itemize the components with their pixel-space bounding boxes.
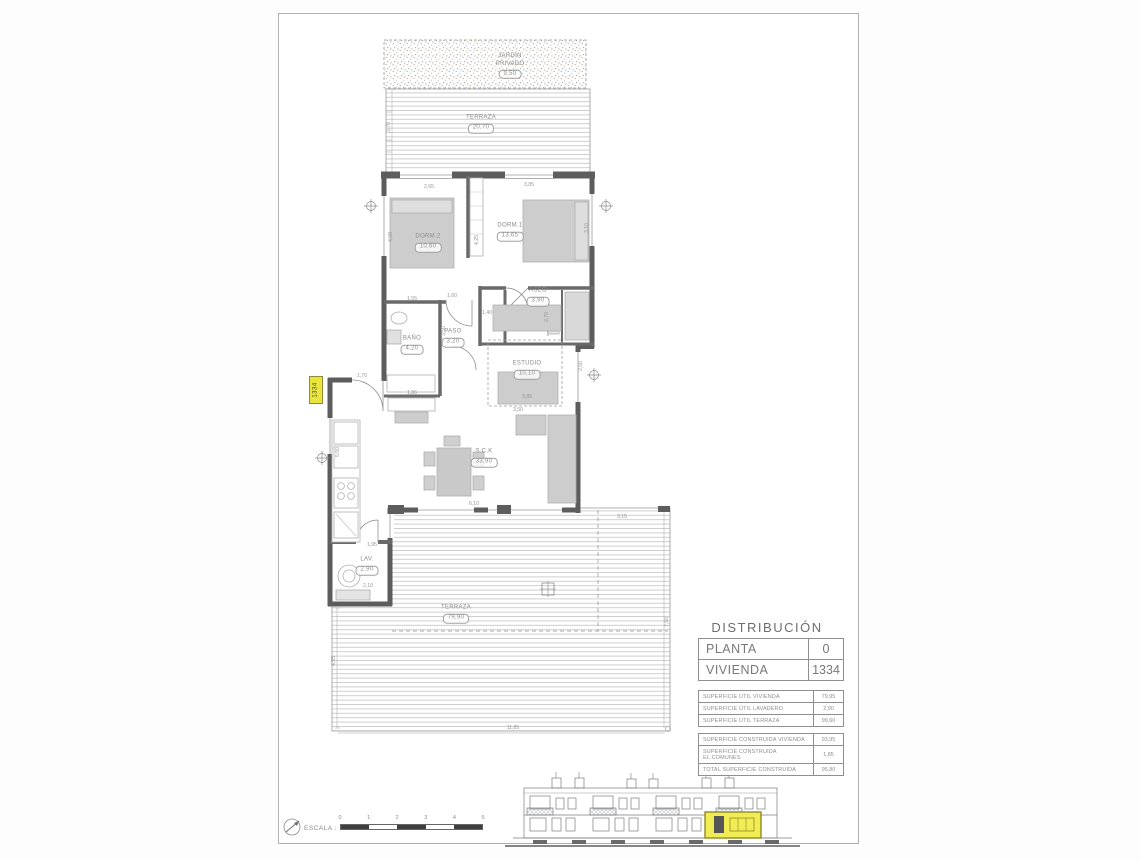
dimension-label: 3,15 [617,514,627,520]
dimension-label: 1,70 [357,373,367,379]
dimension-label: 2,10 [363,583,373,589]
row-value: 79,95 [813,691,843,702]
scale-ticks: 0 1 2 3 4 5 [340,815,483,823]
scale-bar-segments [340,824,483,830]
dimension-label: 1,55 [407,296,417,302]
room-label-estudio: ESTUDIO 10,10 [513,361,542,380]
row-label: PLANTA [699,639,808,659]
dimension-label: 1,95 [367,542,377,548]
dimension-label: 4,08 [388,232,394,242]
unit-number-tag: 1334 [309,376,323,404]
scale-tick: 3 [424,815,427,821]
row-value: 95,80 [813,764,843,775]
dimension-label: 7,50 [664,617,670,627]
row-label: VIVIENDA [699,660,808,680]
scale-segment [397,825,425,829]
dimension-label: 4,55 [331,656,337,666]
row-value: 1334 [808,660,843,680]
room-name: JARDÍN [498,53,521,59]
room-area: 4,20 [401,345,424,355]
highlighted-unit [705,812,761,838]
row-label: SUPERFICIE CONSTRUIDA VIVIENDA [699,734,813,745]
dimension-label: 1,00 [447,293,457,299]
room-label-bano: BAÑO 4,20 [401,336,424,355]
table-row: SUPERFICIE ÚTIL VIVIENDA 79,95 [699,691,843,702]
row-value: 0 [808,639,843,659]
table-row: PLANTA 0 [699,639,843,659]
room-label-aseo: ASEO 3,90 [527,288,550,307]
room-area: 20,70 [468,124,495,134]
scale-bar: ESCALA : 0 1 2 3 4 5 [282,816,492,838]
room-name: ASEO [529,288,547,294]
table-row: SUPERFICIE CONSTRUIDA EL.COMUNES 1,85 [699,745,843,763]
row-label: SUPERFICIE CONSTRUIDA EL.COMUNES [699,746,813,763]
scale-tick: 5 [481,815,484,821]
dimension-label: 3,50 [441,326,447,336]
row-value: 1,85 [813,746,843,763]
room-name: BAÑO [403,336,421,342]
row-value: 99,60 [813,715,843,726]
scale-segment [369,825,397,829]
dimension-label: 2,65 [424,184,434,190]
room-area: 13,65 [497,232,524,242]
room-name: S.C.K [475,449,492,455]
building-elevation [505,772,800,846]
row-label: TOTAL SUPERFICIE CONSTRUIDA [699,764,813,775]
row-value: 93,95 [813,734,843,745]
table-row: SUPERFICIE ÚTIL LAVADERO 2,90 [699,702,843,714]
room-area: 3,20 [442,338,465,348]
scale-segment [426,825,454,829]
distribution-info-table: PLANTA 0 VIVIENDA 1334 [698,638,844,681]
room-area: 9,50 [499,69,522,79]
superficie-construida-table: SUPERFICIE CONSTRUIDA VIVIENDA 93,95 SUP… [698,733,844,776]
dimension-label: 2,70 [544,312,550,322]
table-row: VIVIENDA 1334 [699,659,843,680]
dimension-label: 3,70 [386,122,392,132]
room-area: 10,10 [514,370,541,380]
room-name: ESTUDIO [513,361,542,367]
scale-tick: 0 [338,815,341,821]
table-row: SUPERFICIE CONSTRUIDA VIVIENDA 93,95 [699,734,843,745]
row-label: SUPERFICIE ÚTIL TERRAZA [699,715,813,726]
plan-sheet-page: JARDÍN PRIVADO 9,50 TERRAZA 20,70 DORM.2… [0,0,1140,860]
dimension-label: 5,50 [335,447,341,457]
room-area: 3,90 [527,297,550,307]
unit-number-text: 1334 [313,382,319,397]
dimension-label: 2,50 [578,361,584,371]
room-label-terraza-bottom: TERRAZA 79,90 [441,605,471,624]
room-area: 2,90 [356,566,379,576]
private-garden-area [384,40,586,88]
scale-segment [341,825,369,829]
dimension-label: 3,50 [513,407,523,413]
room-label-jardin: JARDÍN PRIVADO 9,50 [496,53,525,79]
dimension-label: 3,85 [522,394,532,400]
dimension-label: 3,85 [524,182,534,188]
table-row: SUPERFICIE ÚTIL TERRAZA 99,60 [699,714,843,726]
table-row: TOTAL SUPERFICIE CONSTRUIDA 95,80 [699,763,843,775]
room-label-dorm1: DORM.1 13,65 [497,223,524,242]
room-name: TERRAZA [441,605,471,611]
scale-segment [454,825,482,829]
room-area: 79,90 [443,614,470,624]
row-value: 2,90 [813,703,843,714]
dimension-label: 6,10 [469,501,479,507]
room-name: DORM.1 [497,223,522,229]
room-label-terraza-top: TERRAZA 20,70 [466,115,496,134]
superficie-util-table: SUPERFICIE ÚTIL VIVIENDA 79,95 SUPERFICI… [698,690,844,727]
room-name: DORM.2 [415,234,440,240]
scale-tick: 2 [396,815,399,821]
scale-label: ESCALA : [304,825,337,832]
distribution-title: DISTRIBUCIÓN [688,620,846,635]
room-area: 33,90 [471,458,498,468]
room-area: 10,60 [415,243,442,253]
dimension-label: 11,85 [507,725,520,731]
room-name: LAV. [360,557,373,563]
room-name: TERRAZA [466,115,496,121]
scale-tick: 4 [453,815,456,821]
dimension-label: 1,86 [407,390,417,396]
room-name-line2: PRIVADO [496,61,525,67]
room-label-sck: S.C.K 33,90 [471,449,498,468]
row-label: SUPERFICIE ÚTIL VIVIENDA [699,691,813,702]
row-label: SUPERFICIE ÚTIL LAVADERO [699,703,813,714]
scale-tick: 1 [367,815,370,821]
dimension-label: 3,10 [584,223,590,233]
floor-plan-drawing [0,0,1140,860]
room-label-lav: LAV. 2,90 [356,557,379,576]
room-label-dorm2: DORM.2 10,60 [415,234,442,253]
dimension-label: 1,40 [482,310,492,316]
dimension-label: 4,25 [474,235,480,245]
